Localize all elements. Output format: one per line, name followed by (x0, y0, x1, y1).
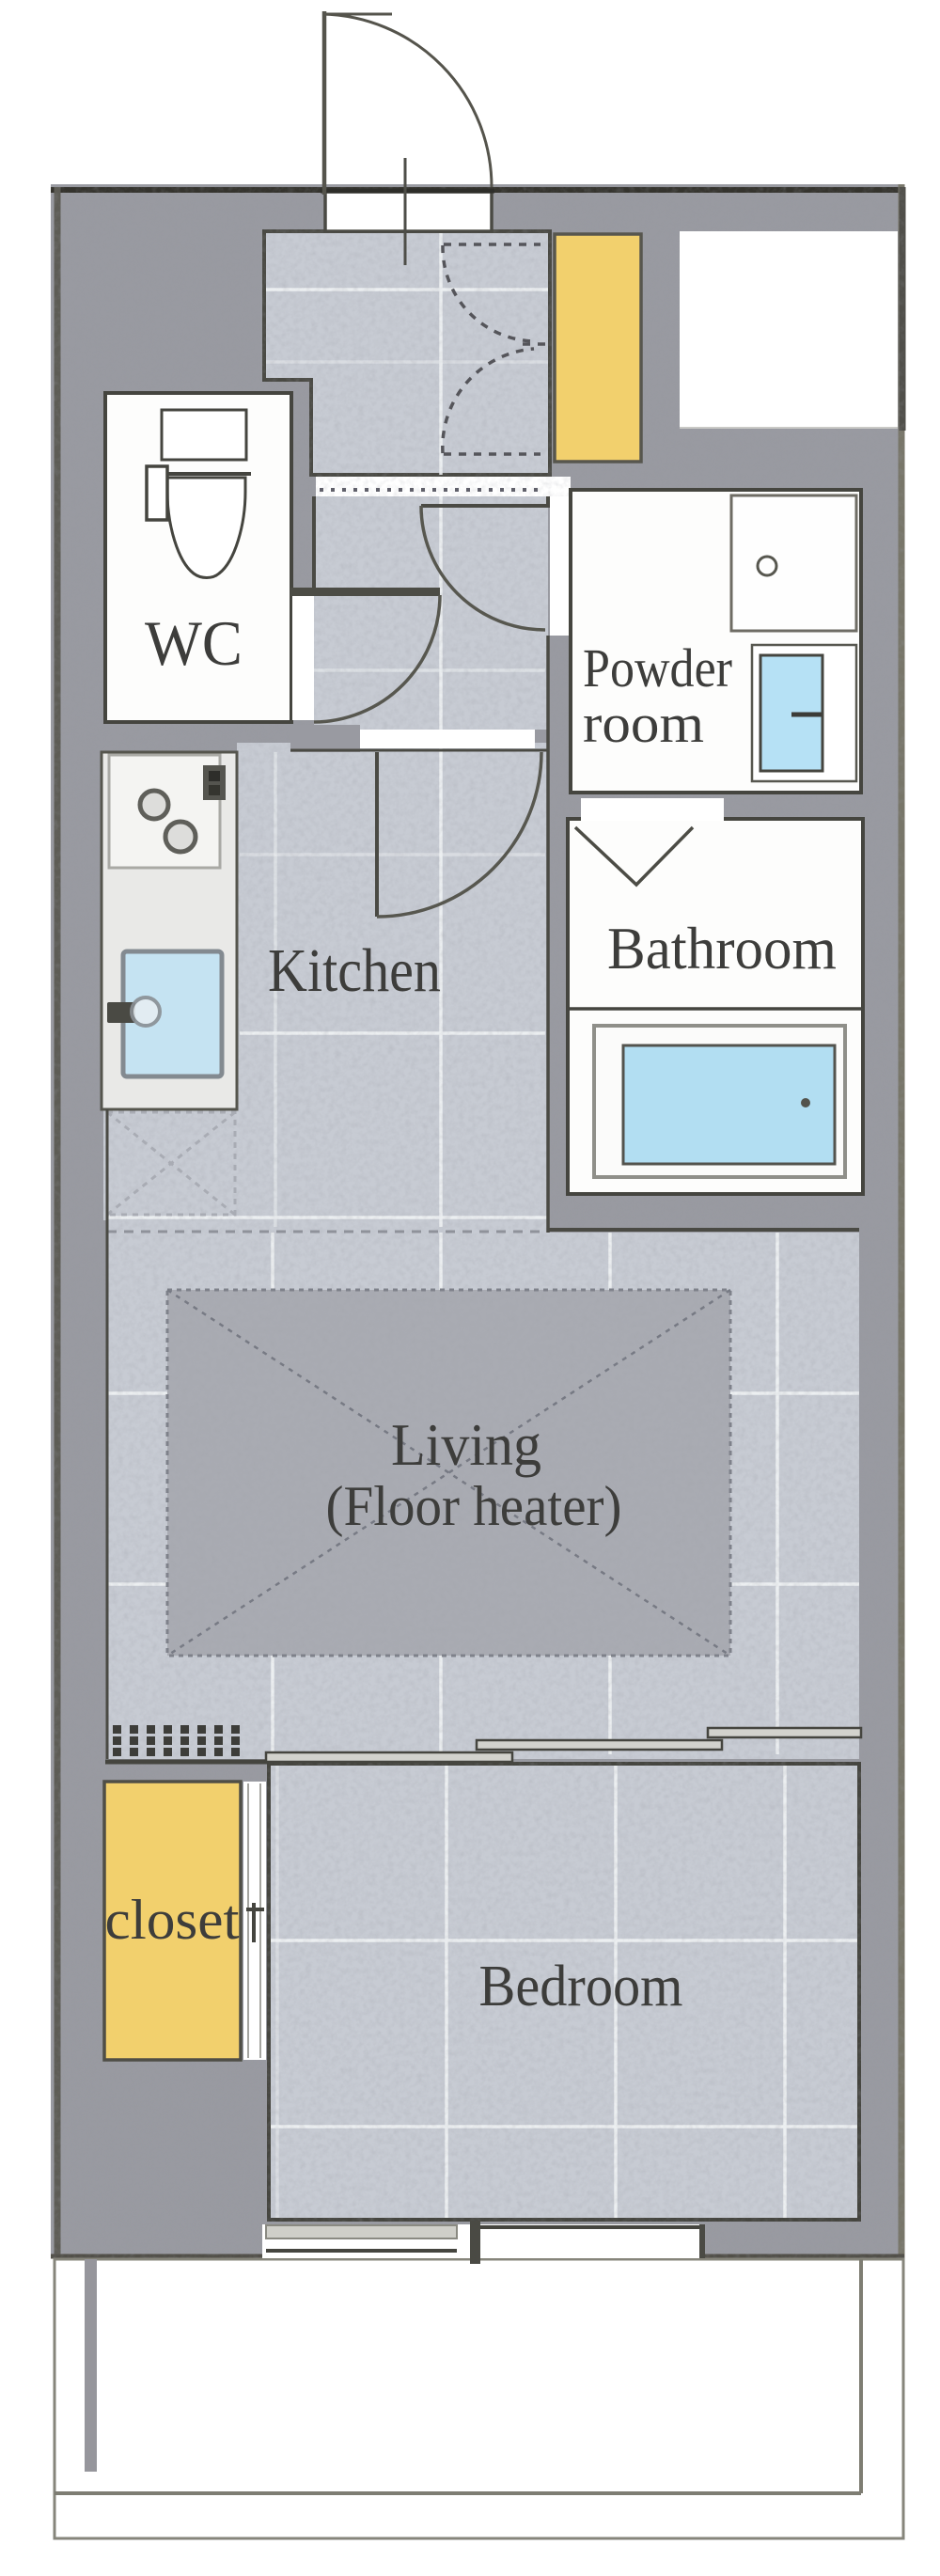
svg-text:WC: WC (145, 607, 243, 679)
svg-text:Powder: Powder (583, 637, 732, 699)
svg-text:Kitchen: Kitchen (268, 936, 441, 1005)
svg-text:Bathroom: Bathroom (607, 915, 837, 982)
svg-text:closet: closet (105, 1889, 240, 1951)
svg-text:Living: Living (391, 1411, 541, 1478)
svg-text:Bedroom: Bedroom (479, 1955, 683, 2018)
svg-text:room: room (583, 693, 704, 754)
svg-text:(Floor heater): (Floor heater) (326, 1475, 622, 1537)
